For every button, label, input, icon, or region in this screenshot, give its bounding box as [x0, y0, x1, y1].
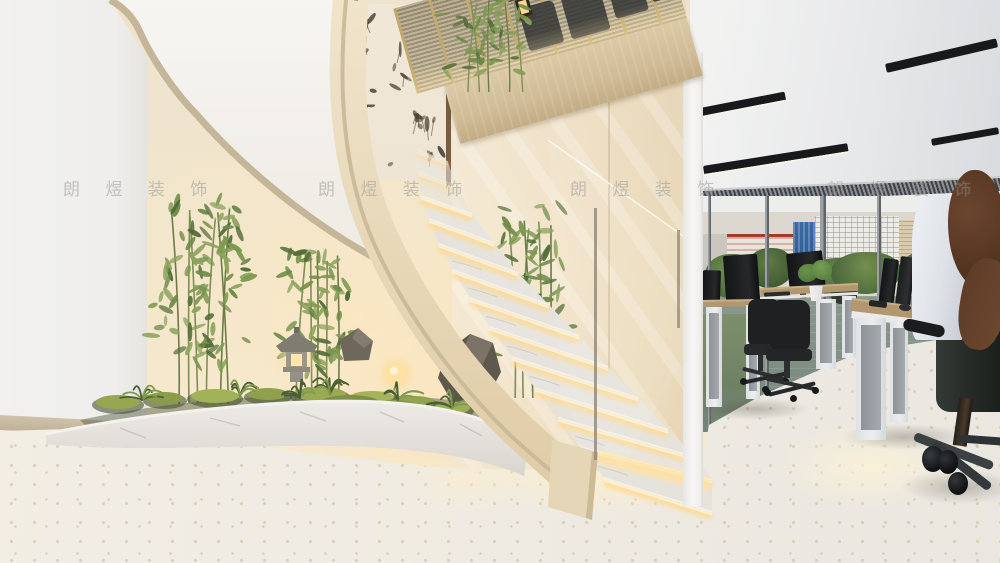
watermark: 朗 煜 装 饰 [827, 175, 981, 200]
watermark: 朗 煜 装 饰 [570, 175, 724, 200]
office-interior-render: 朗 煜 装 饰 朗 煜 装 饰 朗 煜 装 饰 朗 煜 装 饰 [0, 0, 1000, 563]
watermark: 朗 煜 装 饰 [318, 175, 472, 200]
bamboo-cluster [434, 0, 534, 92]
watermark: 朗 煜 装 饰 [63, 175, 217, 200]
mezzanine-planting [0, 0, 1000, 563]
